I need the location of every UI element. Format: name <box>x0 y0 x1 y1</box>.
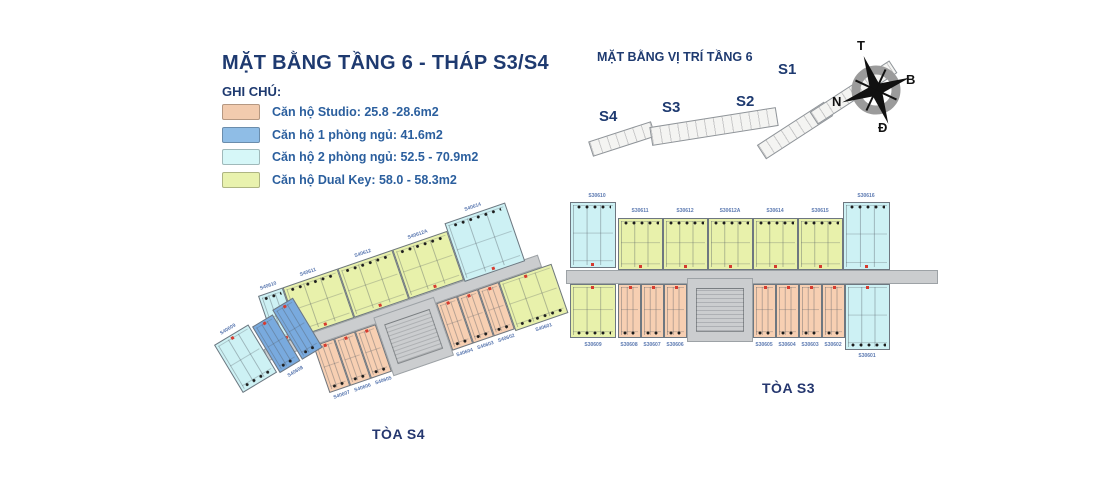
unit-S30614 <box>753 218 798 270</box>
compass: T B N Đ <box>832 38 920 138</box>
door-icons <box>243 368 272 388</box>
unit-label-S30607: S30607 <box>643 342 660 348</box>
legend-swatch-studio <box>222 104 260 120</box>
building-caption-s4: TÒA S4 <box>372 426 425 442</box>
alarm-dot-icon <box>774 265 777 268</box>
unit-label-S30603: S30603 <box>801 342 818 348</box>
unit-S30609 <box>570 284 616 338</box>
alarm-dot-icon <box>365 329 369 333</box>
unit-label-S30612: S30612 <box>676 208 693 214</box>
unit-label-S30612A: S30612A <box>720 208 741 214</box>
door-icons <box>518 308 562 327</box>
door-icons <box>712 221 748 225</box>
unit-label-S30601: S30601 <box>858 353 875 359</box>
alarm-dot-icon <box>378 303 382 307</box>
unit-label-S40606: S40606 <box>354 382 372 393</box>
door-icons <box>371 366 388 375</box>
door-icons <box>575 205 612 209</box>
unit-S30601 <box>845 284 890 350</box>
alarm-dot-icon <box>446 301 450 305</box>
compass-label-left: N <box>832 94 841 109</box>
door-icons <box>398 236 444 255</box>
unit-label-S40607: S40607 <box>333 389 351 400</box>
alarm-dot-icon <box>652 286 655 289</box>
unit-label-S30608: S30608 <box>620 342 637 348</box>
door-icons <box>667 331 685 335</box>
door-icons <box>350 373 367 382</box>
legend-item-two-bedroom: Căn hộ 2 phòng ngủ: 52.5 - 70.9m2 <box>222 148 478 166</box>
door-icons <box>644 331 662 335</box>
door-icons <box>453 338 470 347</box>
unit-S30608 <box>618 284 641 338</box>
unit-S30615 <box>798 218 843 270</box>
unit-label-S30605: S30605 <box>755 342 772 348</box>
unit-label-S30604: S30604 <box>778 342 795 348</box>
door-icons <box>757 221 793 225</box>
location-building-s4 <box>588 121 656 157</box>
compass-label-bottom: Đ <box>878 120 887 135</box>
legend-item-studio: Căn hộ Studio: 25.8 -28.6m2 <box>222 103 439 121</box>
unit-label-S30611: S30611 <box>632 208 649 214</box>
unit-S30607 <box>641 284 664 338</box>
unit-S30612 <box>663 218 708 270</box>
building-caption-s3: TÒA S3 <box>762 380 815 396</box>
legend-item-one-bedroom: Căn hộ 1 phòng ngủ: 41.6m2 <box>222 126 443 144</box>
unit-label-S30602: S30602 <box>824 342 841 348</box>
alarm-dot-icon <box>488 287 492 291</box>
legend-label: Căn hộ 2 phòng ngủ: 52.5 - 70.9m2 <box>272 150 478 164</box>
unit-S30612A <box>708 218 753 270</box>
door-icons <box>825 331 843 335</box>
alarm-dot-icon <box>467 294 471 298</box>
door-icons <box>262 291 282 301</box>
door-icons <box>279 356 297 369</box>
unit-label-S40603: S40603 <box>476 340 494 351</box>
legend-heading: GHI CHÚ: <box>222 84 281 99</box>
door-icons <box>756 331 774 335</box>
door-icons <box>849 343 885 347</box>
alarm-dot-icon <box>639 265 642 268</box>
unit-S30605 <box>753 284 776 338</box>
door-icons <box>667 221 703 225</box>
unit-S30603 <box>799 284 822 338</box>
door-icons <box>289 273 335 292</box>
alarm-dot-icon <box>764 286 767 289</box>
door-icons <box>451 207 502 228</box>
legend-label: Căn hộ 1 phòng ngủ: 41.6m2 <box>272 128 443 142</box>
alarm-dot-icon <box>810 286 813 289</box>
unit-S30616 <box>843 202 890 270</box>
legend-label: Căn hộ Dual Key: 58.0 - 58.3m2 <box>272 173 457 187</box>
floorplan-page: MẶT BẰNG TẦNG 6 - THÁP S3/S4 GHI CHÚ: Că… <box>0 0 1120 480</box>
alarm-dot-icon <box>684 265 687 268</box>
door-icons <box>301 343 319 356</box>
unit-label-S30614: S30614 <box>766 208 783 214</box>
door-icons <box>848 205 886 209</box>
unit-label-S40601: S40601 <box>535 322 553 333</box>
alarm-dot-icon <box>283 304 287 308</box>
location-plan-title: MẶT BẰNG VỊ TRÍ TẦNG 6 <box>597 50 753 64</box>
unit-S30604 <box>776 284 799 338</box>
tower-label-s1: S1 <box>778 61 796 78</box>
door-icons <box>473 331 490 340</box>
unit-label-S30616: S30616 <box>857 193 874 199</box>
alarm-dot-icon <box>524 274 528 278</box>
door-icons <box>622 221 658 225</box>
door-icons <box>621 331 639 335</box>
door-icons <box>330 380 347 389</box>
alarm-dot-icon <box>344 336 348 340</box>
tower-label-s2: S2 <box>736 93 754 110</box>
door-icons <box>575 331 612 335</box>
unit-S30602 <box>822 284 845 338</box>
door-icons <box>344 254 390 273</box>
legend-swatch-two-bedroom <box>222 149 260 165</box>
unit-label-S30610: S30610 <box>588 193 605 199</box>
alarm-dot-icon <box>433 285 437 289</box>
door-icons <box>779 331 797 335</box>
alarm-dot-icon <box>787 286 790 289</box>
door-icons <box>802 221 838 225</box>
unit-label-S40604: S40604 <box>456 347 474 358</box>
alarm-dot-icon <box>819 265 822 268</box>
alarm-dot-icon <box>591 286 594 289</box>
page-title: MẶT BẰNG TẦNG 6 - THÁP S3/S4 <box>222 52 549 75</box>
alarm-dot-icon <box>231 336 235 340</box>
legend-item-dual-key: Căn hộ Dual Key: 58.0 - 58.3m2 <box>222 171 457 189</box>
legend-swatch-one-bedroom <box>222 127 260 143</box>
s3-core <box>687 278 753 342</box>
unit-S30606 <box>664 284 687 338</box>
alarm-dot-icon <box>491 267 495 271</box>
tower-label-s4: S4 <box>599 108 617 125</box>
alarm-dot-icon <box>833 286 836 289</box>
compass-label-top: T <box>857 38 865 53</box>
unit-label-S30606: S30606 <box>666 342 683 348</box>
alarm-dot-icon <box>675 286 678 289</box>
alarm-dot-icon <box>866 286 869 289</box>
unit-label-S30615: S30615 <box>811 208 828 214</box>
door-icons <box>494 323 511 332</box>
legend-swatch-dual-key <box>222 172 260 188</box>
alarm-dot-icon <box>629 286 632 289</box>
door-icons <box>802 331 820 335</box>
alarm-dot-icon <box>591 263 594 266</box>
alarm-dot-icon <box>729 265 732 268</box>
unit-S30611 <box>618 218 663 270</box>
unit-S30610 <box>570 202 616 268</box>
unit-label-S30609: S30609 <box>584 342 601 348</box>
legend-label: Căn hộ Studio: 25.8 -28.6m2 <box>272 105 439 119</box>
compass-icon <box>832 38 920 138</box>
alarm-dot-icon <box>865 265 868 268</box>
alarm-dot-icon <box>263 321 267 325</box>
tower-label-s3: S3 <box>662 99 680 116</box>
building-s3: S30610S30611S30612S30612AS30614S30615S30… <box>570 196 900 361</box>
compass-label-right: B <box>906 72 915 87</box>
unit-label-S40602: S40602 <box>497 333 515 344</box>
unit-label-S40605: S40605 <box>374 375 392 386</box>
